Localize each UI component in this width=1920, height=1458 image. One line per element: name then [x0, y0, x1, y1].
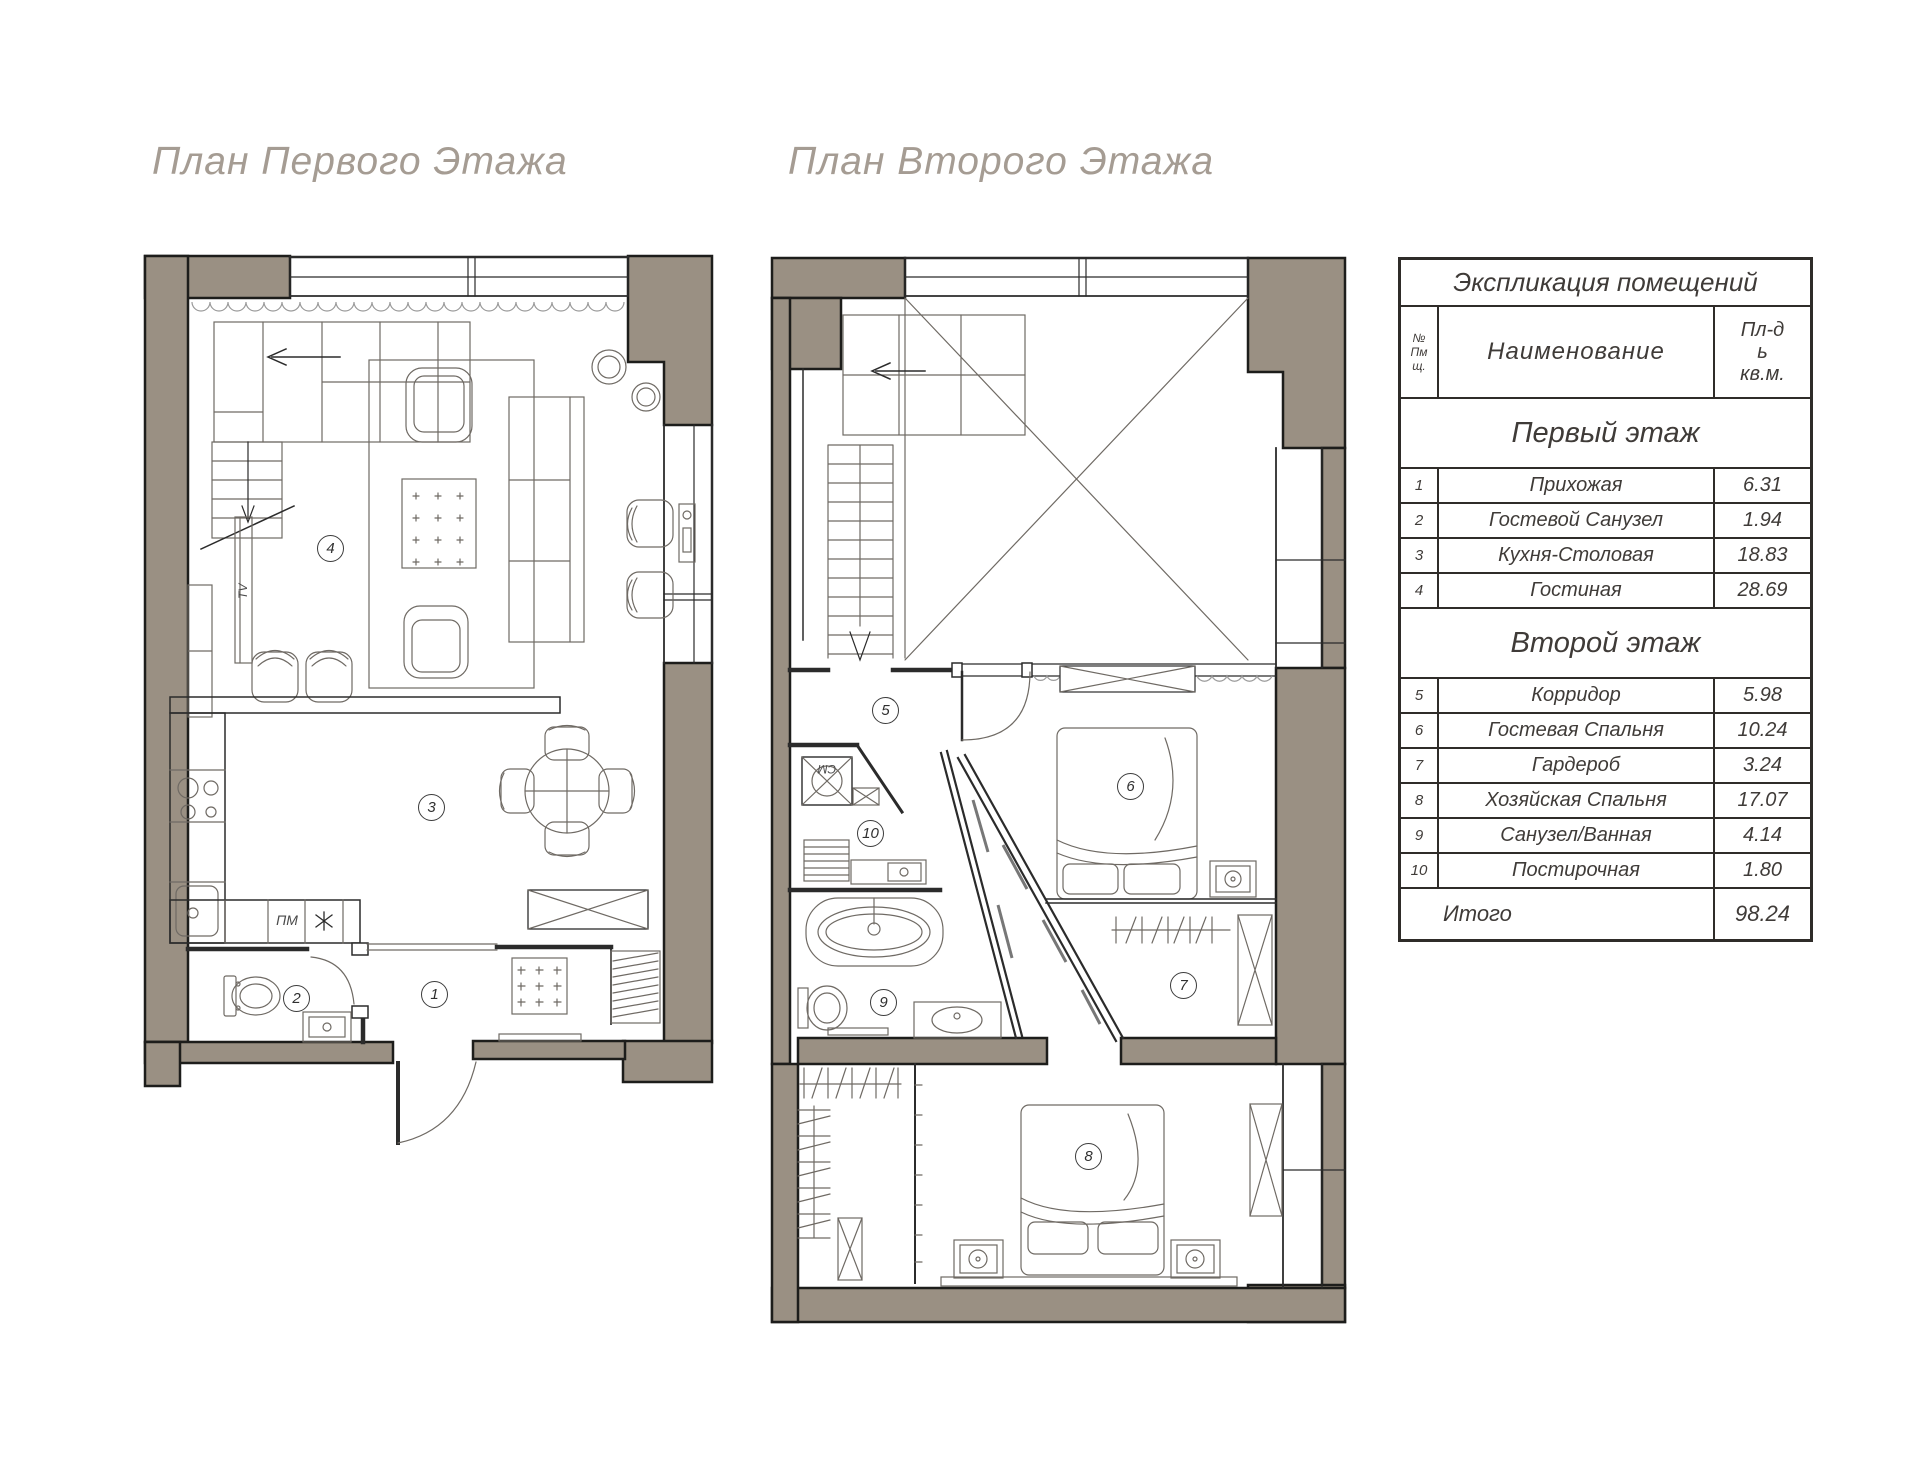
room-number-3: 3 [418, 794, 445, 821]
entrance-door [398, 1062, 476, 1143]
bedroom6-door [962, 672, 1030, 740]
room-number-2: 2 [283, 985, 310, 1012]
plan1-tv-unit [188, 517, 252, 717]
room-number-10: 10 [857, 820, 884, 847]
armchair [404, 606, 468, 678]
table-row: 10 Постирочная 1.80 [1401, 852, 1810, 887]
nightstand [954, 1240, 1003, 1278]
side-table [679, 504, 695, 562]
bar-stools [252, 651, 352, 703]
plan1-living-furniture [252, 350, 695, 702]
tv-label: TV [236, 573, 250, 599]
room-number-5: 5 [872, 697, 899, 724]
plan2-corridor [790, 663, 1276, 740]
bath-sink-icon [914, 1002, 1001, 1038]
section-second-floor: Второй этаж [1401, 607, 1810, 677]
table-row: 5 Корридор 5.98 [1401, 677, 1810, 712]
table-title: Экспликация помещений [1401, 260, 1810, 305]
room-number-6: 6 [1117, 773, 1144, 800]
col-header-number: № Пм щ. [1401, 307, 1439, 397]
col-header-name: Наименование [1439, 307, 1713, 397]
plan2-wardrobe-room [1112, 915, 1272, 1025]
cabinet-x [838, 1218, 862, 1280]
closet-hangers [798, 1068, 901, 1238]
washbasin-icon [303, 1012, 351, 1042]
plan2-laundry [790, 745, 926, 884]
toilet-icon [224, 976, 280, 1016]
page: План Первого Этажа План Второго Этажа .w… [0, 0, 1920, 1458]
table-total-row: Итого 98.24 [1401, 887, 1810, 939]
plan2-diagonal-walls [941, 751, 1123, 1041]
table-row: 8 Хозяйская Спальня 17.07 [1401, 782, 1810, 817]
bathtub-icon [806, 898, 943, 966]
room-number-9: 9 [870, 989, 897, 1016]
table-row: 9 Санузел/Ванная 4.14 [1401, 817, 1810, 852]
laundry-sink-icon [851, 860, 926, 884]
plan1-kitchen [170, 697, 648, 943]
room-number-1: 1 [421, 981, 448, 1008]
toilet-icon [798, 986, 847, 1030]
table-row: 1 Прихожая 6.31 [1401, 467, 1810, 502]
sideboard [528, 890, 648, 929]
room-number-8: 8 [1075, 1143, 1102, 1170]
curtain-line [192, 302, 624, 311]
dining-table [500, 726, 635, 857]
table-row: 6 Гостевая Спальня 10.24 [1401, 712, 1810, 747]
plan2-bathroom [790, 890, 1001, 1038]
plan2-bedroom-master [798, 1064, 1282, 1286]
plan2-walls [772, 258, 1345, 1322]
ottoman [402, 479, 476, 568]
snowflake-icon [316, 912, 332, 930]
cabinet-x [1060, 666, 1195, 692]
plan1-stairs [201, 322, 470, 549]
shelves [804, 840, 849, 881]
plan2-bedroom-guest [1046, 728, 1276, 903]
nightstand [1171, 1240, 1220, 1278]
armchair [406, 368, 472, 442]
washer-label: СМ [812, 762, 842, 776]
plan1-wc [188, 943, 368, 1042]
wardrobe-hangers [611, 951, 660, 1023]
hall-rug [512, 958, 567, 1014]
bed [1021, 1105, 1164, 1275]
table-row: 4 Гостиная 28.69 [1401, 572, 1810, 607]
section-first-floor: Первый этаж [1401, 397, 1810, 467]
wardrobe-x [1238, 915, 1272, 1025]
plan2-void-cross [905, 298, 1248, 660]
table-row: 3 Кухня-Столовая 18.83 [1401, 537, 1810, 572]
sofa [509, 397, 584, 642]
room-number-7: 7 [1170, 972, 1197, 999]
nightstand [1210, 861, 1256, 897]
table-row: 2 Гостевой Санузел 1.94 [1401, 502, 1810, 537]
bed [1057, 728, 1197, 899]
table-row: 7 Гардероб 3.24 [1401, 747, 1810, 782]
col-header-area: Пл-д ь кв.м. [1713, 307, 1810, 397]
room-number-4: 4 [317, 535, 344, 562]
wardrobe-x [1250, 1104, 1282, 1216]
plan1-walls [145, 256, 712, 1086]
explication-table: Экспликация помещений № Пм щ. Наименован… [1398, 257, 1813, 942]
dishwasher-label: ПМ [268, 912, 306, 928]
